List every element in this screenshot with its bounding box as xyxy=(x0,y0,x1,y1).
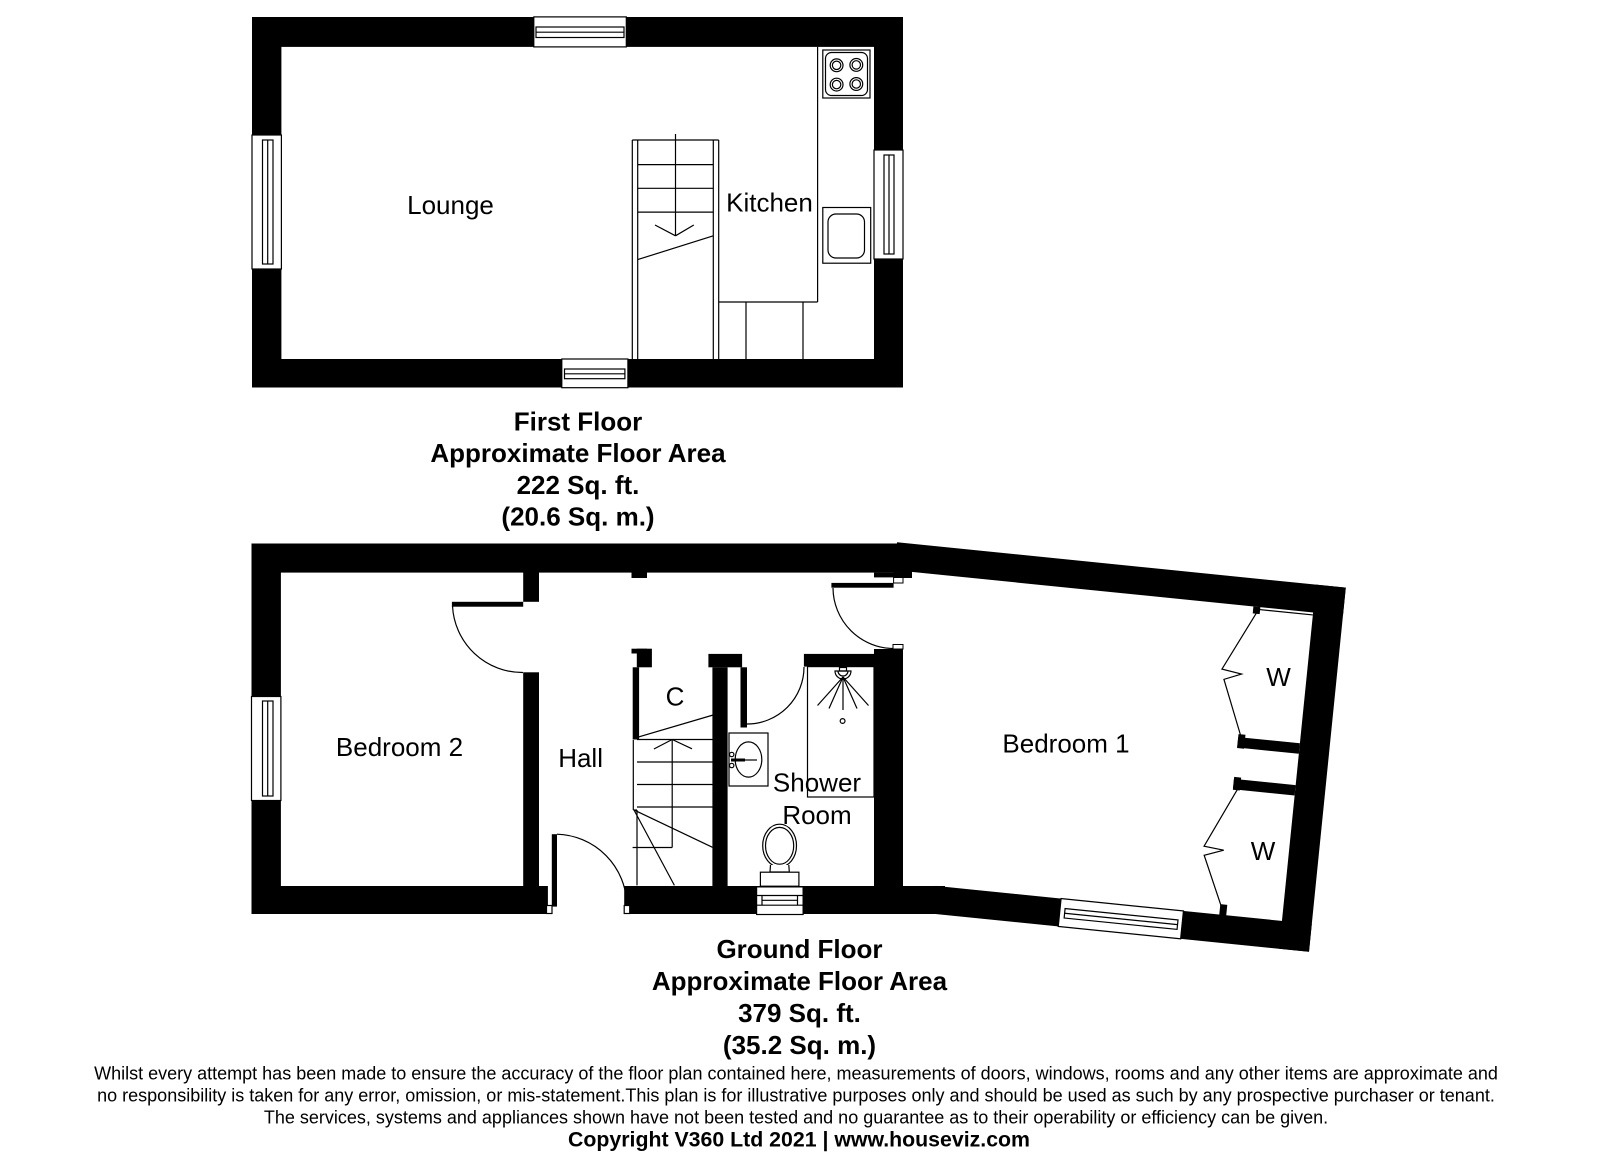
svg-text:Approximate Floor Area: Approximate Floor Area xyxy=(430,438,726,468)
svg-text:Approximate Floor Area: Approximate Floor Area xyxy=(652,966,948,996)
svg-text:no responsibility is taken for: no responsibility is taken for any error… xyxy=(97,1086,1495,1106)
svg-text:379 Sq. ft.: 379 Sq. ft. xyxy=(738,998,861,1028)
svg-text:222 Sq. ft.: 222 Sq. ft. xyxy=(517,470,640,500)
svg-text:Bedroom 2: Bedroom 2 xyxy=(336,732,463,762)
svg-text:Whilst every attempt has been: Whilst every attempt has been made to en… xyxy=(94,1064,1498,1084)
svg-text:Shower: Shower xyxy=(773,768,861,798)
svg-text:Lounge: Lounge xyxy=(407,190,494,220)
svg-text:(35.2 Sq. m.): (35.2 Sq. m.) xyxy=(723,1030,876,1060)
svg-text:The services, systems and appl: The services, systems and appliances sho… xyxy=(264,1108,1328,1128)
svg-text:Kitchen: Kitchen xyxy=(726,188,813,218)
svg-text:Bedroom 1: Bedroom 1 xyxy=(1002,729,1129,759)
svg-text:C: C xyxy=(666,682,685,712)
svg-text:Hall: Hall xyxy=(558,743,603,773)
svg-text:Ground Floor: Ground Floor xyxy=(716,934,882,964)
svg-text:W: W xyxy=(1251,836,1276,866)
svg-text:(20.6 Sq. m.): (20.6 Sq. m.) xyxy=(501,502,654,532)
svg-text:First Floor: First Floor xyxy=(514,407,643,437)
svg-text:Copyright V360 Ltd 2021 | www.: Copyright V360 Ltd 2021 | www.houseviz.c… xyxy=(568,1128,1030,1152)
svg-text:Room: Room xyxy=(782,800,851,830)
svg-text:W: W xyxy=(1266,662,1291,692)
